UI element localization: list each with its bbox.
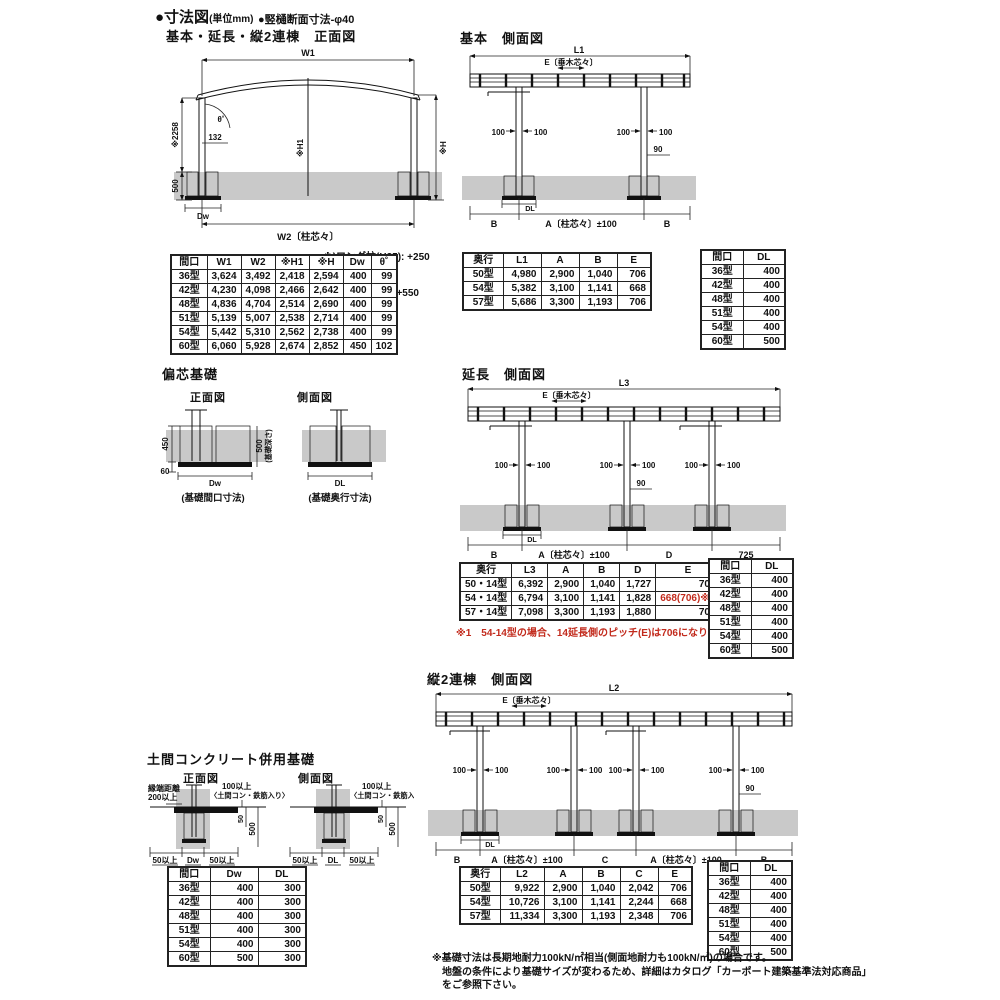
table-row: 51型400 bbox=[709, 616, 793, 630]
dim-label-132: 132 bbox=[208, 133, 222, 142]
table-cell: 50型 bbox=[460, 882, 500, 896]
table-cell: 51型 bbox=[701, 307, 743, 321]
label-over50: 50以上 bbox=[293, 855, 318, 865]
header-row: 間口W1W2※H1※HDwθ˚ bbox=[171, 255, 397, 270]
table-cell: 1,040 bbox=[582, 882, 620, 896]
table-cell: 400 bbox=[743, 321, 785, 335]
dim-label-500: 500 bbox=[388, 822, 397, 836]
dim-label-500: 500 bbox=[171, 179, 180, 193]
dim-label-d: D bbox=[666, 550, 673, 560]
table-cell: 400 bbox=[750, 932, 792, 946]
dim-label-dw: Dw bbox=[209, 479, 222, 488]
table-cell: 1,040 bbox=[584, 578, 620, 592]
table-cell: 48型 bbox=[709, 602, 751, 616]
table-cell: 5,310 bbox=[241, 326, 275, 340]
table-cell: 2,562 bbox=[275, 326, 309, 340]
table-cell: 1,141 bbox=[584, 592, 620, 606]
table-cell: 1,193 bbox=[584, 606, 620, 621]
table-cell: 99 bbox=[371, 270, 397, 284]
dim-label-dl: DL bbox=[328, 856, 339, 865]
header-row: 奥行L3ABDE bbox=[460, 563, 721, 578]
basic-side-spec-table: 奥行L1ABE50型4,9802,9001,04070654型5,3823,10… bbox=[462, 252, 652, 311]
table-cell: 500 bbox=[751, 644, 793, 659]
header-row: 奥行L1ABE bbox=[463, 253, 651, 268]
page-header: ●寸法図(単位mm) bbox=[155, 6, 254, 27]
double-side-spec-table: 奥行L2ABCE50型9,9222,9001,0402,04270654型10,… bbox=[459, 866, 693, 925]
dim-label-h: ※H bbox=[438, 141, 448, 155]
dim-label-h1: ※H1 bbox=[295, 138, 305, 157]
table-cell: 2,690 bbox=[309, 298, 343, 312]
table-row: 48型400 bbox=[708, 904, 792, 918]
footnote-line-1: ※基礎寸法は長期地耐力100kN/㎡相当(側面地耐力も100kN/㎡)の場合です… bbox=[432, 952, 872, 966]
table-cell: 54・14型 bbox=[460, 592, 512, 606]
table-cell: 2,348 bbox=[620, 910, 658, 925]
table-cell: 51型 bbox=[171, 312, 207, 326]
dim-label-c: C bbox=[602, 855, 609, 865]
table-row: 60型500 bbox=[709, 644, 793, 659]
table-cell: 50型 bbox=[463, 268, 503, 282]
dim-label-450: 450 bbox=[161, 437, 170, 451]
table-cell: 2,674 bbox=[275, 340, 309, 355]
table-cell: 3,300 bbox=[544, 910, 582, 925]
section-title-henshin: 偏芯基礎 bbox=[162, 364, 218, 383]
dim-label-60: 60 bbox=[161, 467, 170, 476]
henshin-side-label: 側面図 bbox=[297, 389, 333, 405]
table-cell: 1,040 bbox=[579, 268, 617, 282]
table-cell: 2,466 bbox=[275, 284, 309, 298]
table-cell: 400 bbox=[743, 279, 785, 293]
column-header: 間口 bbox=[708, 861, 750, 876]
table-row: 36型400 bbox=[701, 265, 785, 279]
table-row: 60型500 bbox=[701, 335, 785, 350]
dim-label-e: E〔垂木芯々〕 bbox=[542, 390, 595, 400]
table-cell: 706 bbox=[617, 268, 651, 282]
table-cell: 2,244 bbox=[620, 896, 658, 910]
label-rebar: 〈土間コン・鉄筋入り〉 bbox=[350, 791, 414, 800]
table-cell: 5,007 bbox=[241, 312, 275, 326]
doma-foundation-diagram: 縁端距離 200以上 100以上 〈土間コン・鉄筋入り〉 50 500 50以上… bbox=[146, 781, 414, 869]
maguchi-dl-table-1: 間口DL36型40042型40048型40051型40054型40060型500 bbox=[700, 249, 786, 350]
table-row: 50・14型6,3922,9001,0401,727706 bbox=[460, 578, 721, 592]
table-row: 51型400300 bbox=[168, 924, 306, 938]
roof-band bbox=[436, 712, 792, 726]
header-row: 間口DL bbox=[701, 250, 785, 265]
table-row: 48型400 bbox=[701, 293, 785, 307]
dim-label-100: 100 bbox=[453, 766, 467, 775]
dim-label-90: 90 bbox=[746, 784, 755, 793]
table-cell: 2,738 bbox=[309, 326, 343, 340]
maguchi-dl-table-3: 間口DL36型40042型40048型40051型40054型40060型500 bbox=[707, 860, 793, 961]
dim-label-dl: DL bbox=[525, 204, 535, 213]
table-cell: 400 bbox=[750, 890, 792, 904]
table-cell: 2,042 bbox=[620, 882, 658, 896]
section-title-doma: 土間コンクリート併用基礎 bbox=[147, 749, 315, 768]
table-cell: 2,514 bbox=[275, 298, 309, 312]
table-row: 48型400300 bbox=[168, 910, 306, 924]
column-header: 間口 bbox=[709, 559, 751, 574]
column-header: 間口 bbox=[701, 250, 743, 265]
table-cell: 4,836 bbox=[207, 298, 241, 312]
table-cell: 60型 bbox=[701, 335, 743, 350]
table-cell: 5,928 bbox=[241, 340, 275, 355]
catalog-page: { "header": { "title": "●寸法図", "unit": "… bbox=[0, 0, 1000, 1000]
table-cell: 1,193 bbox=[579, 296, 617, 311]
table-cell: 706 bbox=[658, 882, 692, 896]
table-cell: 400 bbox=[343, 326, 371, 340]
table-cell: 1,727 bbox=[620, 578, 656, 592]
label-over50: 50以上 bbox=[210, 855, 235, 865]
front-view-diagram: W1 θ˚ 132 ※2258 500 ※H1 ※H Dw W2〔柱芯々〕 bbox=[166, 44, 450, 248]
table-cell: 4,980 bbox=[503, 268, 541, 282]
label-rebar: 〈土間コン・鉄筋入り〉 bbox=[210, 791, 289, 800]
table-cell: 400 bbox=[751, 630, 793, 644]
column-header: DL bbox=[743, 250, 785, 265]
label-over100: 100以上 bbox=[222, 781, 251, 791]
dim-label-dl: DL bbox=[527, 535, 537, 544]
table-cell: 4,704 bbox=[241, 298, 275, 312]
table-cell: 400 bbox=[743, 265, 785, 279]
dim-label-100: 100 bbox=[659, 128, 673, 137]
table-cell: 9,922 bbox=[500, 882, 544, 896]
column-header: DL bbox=[751, 559, 793, 574]
column-header: E bbox=[658, 867, 692, 882]
table-cell: 400 bbox=[750, 904, 792, 918]
column-header: 間口 bbox=[168, 867, 210, 882]
table-cell: 51型 bbox=[168, 924, 210, 938]
table-cell: 300 bbox=[258, 896, 306, 910]
table-cell: 54型 bbox=[460, 896, 500, 910]
dim-label-a: A〔柱芯々〕±100 bbox=[545, 218, 616, 229]
table-cell: 36型 bbox=[168, 882, 210, 896]
double-side-diagram: L2 E〔垂木芯々〕 100 100 100 100 100 100 100 1… bbox=[426, 684, 800, 866]
table-cell: 42型 bbox=[708, 890, 750, 904]
table-cell: 42型 bbox=[168, 896, 210, 910]
table-row: 51型5,1395,0072,5382,71440099 bbox=[171, 312, 397, 326]
table-row: 57・14型7,0983,3001,1931,880706 bbox=[460, 606, 721, 621]
table-cell: 400 bbox=[750, 876, 792, 890]
dim-label-b: B bbox=[664, 219, 671, 229]
table-cell: 1,141 bbox=[579, 282, 617, 296]
dim-label-90: 90 bbox=[654, 145, 663, 154]
basic-side-diagram: L1 E〔垂木芯々〕 100 100 100 100 90 DL B A〔柱芯々… bbox=[460, 44, 698, 244]
table-cell: 57型 bbox=[460, 910, 500, 925]
table-row: 42型400 bbox=[709, 588, 793, 602]
table-row: 51型400 bbox=[701, 307, 785, 321]
dim-label-100: 100 bbox=[495, 461, 509, 470]
table-cell: 300 bbox=[258, 924, 306, 938]
dim-label-dl: DL bbox=[335, 479, 346, 488]
column-header: L2 bbox=[500, 867, 544, 882]
table-cell: 60型 bbox=[709, 644, 751, 659]
section-title-front: 基本・延長・縦2連棟 正面図 bbox=[166, 26, 356, 45]
dim-label-100: 100 bbox=[709, 766, 723, 775]
dim-label-100: 100 bbox=[727, 461, 741, 470]
column-header: 奥行 bbox=[460, 563, 512, 578]
table-row: 51型400 bbox=[708, 918, 792, 932]
table-cell: 2,900 bbox=[548, 578, 584, 592]
table-row: 57型5,6863,3001,193706 bbox=[463, 296, 651, 311]
table-cell: 2,538 bbox=[275, 312, 309, 326]
table-cell: 54型 bbox=[168, 938, 210, 952]
dim-label-e: E〔垂木芯々〕 bbox=[502, 695, 555, 705]
table-cell: 6,060 bbox=[207, 340, 241, 355]
table-row: 54型400 bbox=[709, 630, 793, 644]
table-cell: 54型 bbox=[709, 630, 751, 644]
table-row: 36型3,6243,4922,4182,59440099 bbox=[171, 270, 397, 284]
table-cell: 3,100 bbox=[544, 896, 582, 910]
table-cell: 42型 bbox=[171, 284, 207, 298]
table-row: 42型400 bbox=[708, 890, 792, 904]
table-cell: 54型 bbox=[701, 321, 743, 335]
table-row: 60型500300 bbox=[168, 952, 306, 967]
table-cell: 99 bbox=[371, 312, 397, 326]
table-cell: 60型 bbox=[171, 340, 207, 355]
column-header: L1 bbox=[503, 253, 541, 268]
table-cell: 300 bbox=[258, 882, 306, 896]
table-row: 48型4,8364,7042,5142,69040099 bbox=[171, 298, 397, 312]
table-row: 60型6,0605,9282,6742,852450102 bbox=[171, 340, 397, 355]
header-row: 間口DwDL bbox=[168, 867, 306, 882]
table-cell: 5,382 bbox=[503, 282, 541, 296]
column-header: A bbox=[548, 563, 584, 578]
dim-label-b: B bbox=[454, 855, 461, 865]
table-cell: 2,900 bbox=[544, 882, 582, 896]
table-cell: 400 bbox=[343, 312, 371, 326]
footnote-line-2: 地盤の条件により基礎サイズが変わるため、詳細はカタログ「カーポート建築基準法対応… bbox=[432, 966, 872, 980]
henshin-front-label: 正面図 bbox=[190, 389, 226, 405]
table-cell: 48型 bbox=[168, 910, 210, 924]
table-cell: 400 bbox=[751, 574, 793, 588]
ext-side-spec-table: 奥行L3ABDE50・14型6,3922,9001,0401,72770654・… bbox=[459, 562, 722, 621]
table-cell: 3,300 bbox=[541, 296, 579, 311]
label-over50: 50以上 bbox=[350, 855, 375, 865]
table-cell: 706 bbox=[617, 296, 651, 311]
dim-label-dw: Dw bbox=[197, 212, 210, 221]
table-cell: 42型 bbox=[701, 279, 743, 293]
column-header: 奥行 bbox=[463, 253, 503, 268]
table-row: 54型400 bbox=[701, 321, 785, 335]
table-cell: 1,880 bbox=[620, 606, 656, 621]
table-row: 42型4,2304,0982,4662,64240099 bbox=[171, 284, 397, 298]
front-spec-table: 間口W1W2※H1※HDwθ˚36型3,6243,4922,4182,59440… bbox=[170, 254, 398, 355]
column-header: DL bbox=[258, 867, 306, 882]
table-cell: 1,141 bbox=[582, 896, 620, 910]
table-row: 54型5,4425,3102,5622,73840099 bbox=[171, 326, 397, 340]
table-cell: 2,642 bbox=[309, 284, 343, 298]
dim-label-100: 100 bbox=[589, 766, 603, 775]
dim-label-depth: (基礎深さ) bbox=[264, 429, 273, 463]
header-row: 間口DL bbox=[709, 559, 793, 574]
table-cell: 5,686 bbox=[503, 296, 541, 311]
dim-label-b: B bbox=[491, 550, 498, 560]
dim-label-100: 100 bbox=[609, 766, 623, 775]
dim-label-90: 90 bbox=[637, 479, 646, 488]
table-cell: 54型 bbox=[463, 282, 503, 296]
header-row: 間口DL bbox=[708, 861, 792, 876]
page-footnote: ※基礎寸法は長期地耐力100kN/㎡相当(側面地耐力も100kN/㎡)の場合です… bbox=[432, 952, 872, 993]
table-cell: 400 bbox=[343, 298, 371, 312]
table-cell: 36型 bbox=[708, 876, 750, 890]
column-header: B bbox=[579, 253, 617, 268]
table-cell: 2,594 bbox=[309, 270, 343, 284]
henshin-front-caption: (基礎間口寸法) bbox=[181, 492, 244, 504]
table-cell: 3,300 bbox=[548, 606, 584, 621]
dim-label-e: E〔垂木芯々〕 bbox=[544, 57, 597, 67]
table-cell: 400 bbox=[210, 910, 258, 924]
table-cell: 400 bbox=[743, 293, 785, 307]
table-cell: 5,442 bbox=[207, 326, 241, 340]
roof-band bbox=[470, 74, 690, 87]
maguchi-dl-table-2: 間口DL36型40042型40048型40051型40054型40060型500 bbox=[708, 558, 794, 659]
table-cell: 1,193 bbox=[582, 910, 620, 925]
table-cell: 54型 bbox=[708, 932, 750, 946]
table-cell: 3,100 bbox=[548, 592, 584, 606]
table-cell: 400 bbox=[750, 918, 792, 932]
table-cell: 2,852 bbox=[309, 340, 343, 355]
column-header: L3 bbox=[512, 563, 548, 578]
table-cell: 300 bbox=[258, 952, 306, 967]
table-cell: 48型 bbox=[701, 293, 743, 307]
table-cell: 500 bbox=[210, 952, 258, 967]
table-row: 42型400300 bbox=[168, 896, 306, 910]
table-cell: 500 bbox=[743, 335, 785, 350]
table-cell: 400 bbox=[210, 882, 258, 896]
column-header: 間口 bbox=[171, 255, 207, 270]
table-cell: 4,230 bbox=[207, 284, 241, 298]
table-cell: 400 bbox=[210, 924, 258, 938]
table-cell: 400 bbox=[343, 270, 371, 284]
table-row: 50型9,9222,9001,0402,042706 bbox=[460, 882, 692, 896]
table-cell: 706 bbox=[658, 910, 692, 925]
doma-spec-table: 間口DwDL36型40030042型40030048型40030051型4003… bbox=[167, 866, 307, 967]
dim-label-l2: L2 bbox=[609, 684, 620, 693]
header-row: 奥行L2ABCE bbox=[460, 867, 692, 882]
dim-label-a: A〔柱芯々〕±100 bbox=[538, 549, 609, 560]
table-cell: 57・14型 bbox=[460, 606, 512, 621]
column-header: Dw bbox=[343, 255, 371, 270]
table-row: 36型400 bbox=[709, 574, 793, 588]
table-row: 54型400 bbox=[708, 932, 792, 946]
table-cell: 99 bbox=[371, 326, 397, 340]
column-header: A bbox=[544, 867, 582, 882]
dim-label-2258: ※2258 bbox=[170, 122, 180, 148]
table-cell: 668 bbox=[617, 282, 651, 296]
table-cell: 2,714 bbox=[309, 312, 343, 326]
table-cell: 36型 bbox=[701, 265, 743, 279]
roof-band bbox=[468, 407, 780, 421]
column-header: Dw bbox=[210, 867, 258, 882]
ext-side-diagram: L3 E〔垂木芯々〕 100 100 100 100 100 100 90 DL… bbox=[458, 379, 788, 561]
table-row: 57型11,3343,3001,1932,348706 bbox=[460, 910, 692, 925]
column-header: W1 bbox=[207, 255, 241, 270]
dim-label-dw: Dw bbox=[187, 856, 200, 865]
label-over50: 50以上 bbox=[153, 855, 178, 865]
table-cell: 3,492 bbox=[241, 270, 275, 284]
dim-label-dl: DL bbox=[485, 840, 495, 849]
column-header: C bbox=[620, 867, 658, 882]
dim-label-100: 100 bbox=[495, 766, 509, 775]
dim-label-w1: W1 bbox=[301, 48, 315, 58]
column-header: ※H1 bbox=[275, 255, 309, 270]
dim-label-500: 500 bbox=[255, 439, 264, 453]
dim-label-500: 500 bbox=[248, 822, 257, 836]
table-cell: 51型 bbox=[709, 616, 751, 630]
dim-label-50: 50 bbox=[236, 815, 245, 823]
dim-label-b: B bbox=[491, 219, 498, 229]
column-header: E bbox=[617, 253, 651, 268]
table-cell: 6,794 bbox=[512, 592, 548, 606]
table-cell: 400 bbox=[751, 602, 793, 616]
table-cell: 400 bbox=[210, 938, 258, 952]
column-header: B bbox=[584, 563, 620, 578]
label-over100: 100以上 bbox=[362, 781, 391, 791]
henshin-side-caption: (基礎奥行寸法) bbox=[308, 492, 371, 504]
dim-label-100: 100 bbox=[537, 461, 551, 470]
table-cell: 2,418 bbox=[275, 270, 309, 284]
label-edge-distance: 縁端距離 bbox=[148, 783, 180, 793]
dim-label-50: 50 bbox=[376, 815, 385, 823]
table-cell: 300 bbox=[258, 938, 306, 952]
table-cell: 36型 bbox=[171, 270, 207, 284]
table-cell: 7,098 bbox=[512, 606, 548, 621]
table-cell: 3,100 bbox=[541, 282, 579, 296]
column-header: 奥行 bbox=[460, 867, 500, 882]
table-cell: 2,900 bbox=[541, 268, 579, 282]
table-cell: 99 bbox=[371, 284, 397, 298]
table-cell: 36型 bbox=[709, 574, 751, 588]
column-header: D bbox=[620, 563, 656, 578]
table-cell: 400 bbox=[751, 588, 793, 602]
column-header: W2 bbox=[241, 255, 275, 270]
table-cell: 400 bbox=[743, 307, 785, 321]
table-cell: 668 bbox=[658, 896, 692, 910]
table-row: 42型400 bbox=[701, 279, 785, 293]
table-cell: 50・14型 bbox=[460, 578, 512, 592]
column-header: B bbox=[582, 867, 620, 882]
dim-label-100: 100 bbox=[600, 461, 614, 470]
dim-label-a: A〔柱芯々〕±100 bbox=[491, 854, 562, 865]
table-cell: 400 bbox=[210, 896, 258, 910]
dim-label-100: 100 bbox=[617, 128, 631, 137]
dim-label-100: 100 bbox=[492, 128, 506, 137]
table-cell: 10,726 bbox=[500, 896, 544, 910]
table-row: 54型10,7263,1001,1412,244668 bbox=[460, 896, 692, 910]
table-cell: 42型 bbox=[709, 588, 751, 602]
table-row: 50型4,9802,9001,040706 bbox=[463, 268, 651, 282]
column-header: DL bbox=[750, 861, 792, 876]
table-cell: 48型 bbox=[708, 904, 750, 918]
dim-label-100: 100 bbox=[685, 461, 699, 470]
ext-red-note: ※1 54-14型の場合、14延長側のピッチ(E)は706になります。 bbox=[456, 624, 737, 639]
table-cell: 450 bbox=[343, 340, 371, 355]
dim-label-100: 100 bbox=[547, 766, 561, 775]
table-cell: 60型 bbox=[168, 952, 210, 967]
table-cell: 1,828 bbox=[620, 592, 656, 606]
table-row: 36型400300 bbox=[168, 882, 306, 896]
dim-label-100: 100 bbox=[751, 766, 765, 775]
table-row: 48型400 bbox=[709, 602, 793, 616]
dim-label-100: 100 bbox=[651, 766, 665, 775]
table-cell: 400 bbox=[343, 284, 371, 298]
table-cell: 57型 bbox=[463, 296, 503, 311]
label-edge-200: 200以上 bbox=[148, 792, 177, 802]
table-cell: 54型 bbox=[171, 326, 207, 340]
table-cell: 300 bbox=[258, 910, 306, 924]
dim-label-100: 100 bbox=[642, 461, 656, 470]
table-cell: 6,392 bbox=[512, 578, 548, 592]
page-title-unit: (単位mm) bbox=[209, 14, 253, 25]
table-cell: 102 bbox=[371, 340, 397, 355]
